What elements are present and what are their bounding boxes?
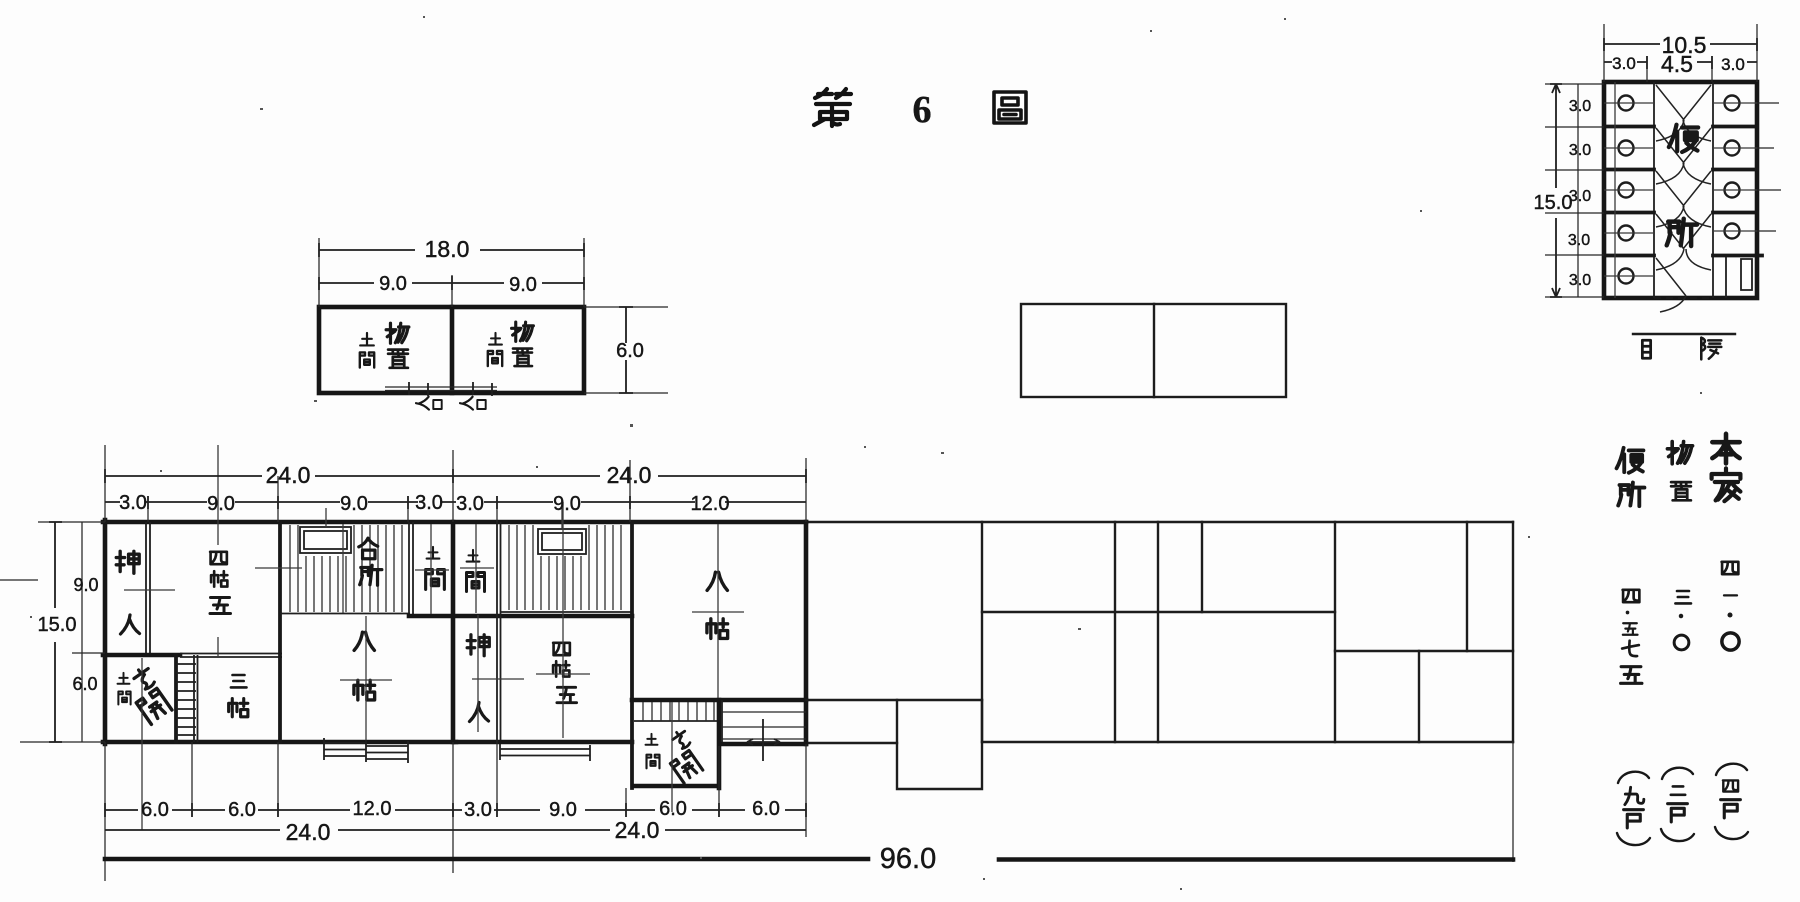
svg-text:24.0: 24.0: [286, 819, 331, 845]
svg-text:3.0: 3.0: [1569, 188, 1591, 205]
svg-text:12.0: 12.0: [691, 493, 730, 515]
svg-text:9.0: 9.0: [73, 575, 98, 595]
svg-text:9.0: 9.0: [207, 493, 235, 515]
svg-text:15.0: 15.0: [1534, 192, 1573, 214]
svg-text:24.0: 24.0: [607, 462, 652, 488]
svg-text:6.0: 6.0: [616, 340, 644, 362]
svg-text:6.0: 6.0: [752, 798, 780, 820]
svg-text:9.0: 9.0: [509, 274, 537, 296]
svg-text:24.0: 24.0: [615, 817, 660, 843]
svg-text:15.0: 15.0: [38, 614, 77, 636]
svg-text:4.5: 4.5: [1661, 51, 1693, 77]
svg-text:3.0: 3.0: [415, 492, 443, 514]
svg-text:6.0: 6.0: [72, 674, 97, 694]
svg-text:6.0: 6.0: [141, 799, 169, 821]
svg-text:3.0: 3.0: [1569, 272, 1591, 289]
svg-text:12.0: 12.0: [353, 798, 392, 820]
svg-text:3.0: 3.0: [1569, 142, 1591, 159]
svg-text:9.0: 9.0: [549, 799, 577, 821]
svg-text:3.0: 3.0: [1568, 232, 1590, 249]
svg-text:6.0: 6.0: [228, 799, 256, 821]
svg-text:3.0: 3.0: [464, 799, 492, 821]
svg-text:96.0: 96.0: [880, 843, 936, 875]
svg-text:9.0: 9.0: [553, 493, 581, 515]
svg-text:3.0: 3.0: [456, 493, 484, 515]
svg-text:3.0: 3.0: [1612, 54, 1636, 73]
svg-text:9.0: 9.0: [379, 273, 407, 295]
svg-text:6: 6: [913, 89, 932, 131]
svg-text:18.0: 18.0: [425, 236, 470, 262]
svg-text:24.0: 24.0: [266, 462, 311, 488]
svg-text:9.0: 9.0: [340, 493, 368, 515]
svg-text:3.0: 3.0: [1721, 55, 1745, 74]
svg-text:3.0: 3.0: [1569, 98, 1591, 115]
svg-text:3.0: 3.0: [119, 492, 147, 514]
svg-text:6.0: 6.0: [659, 798, 687, 820]
